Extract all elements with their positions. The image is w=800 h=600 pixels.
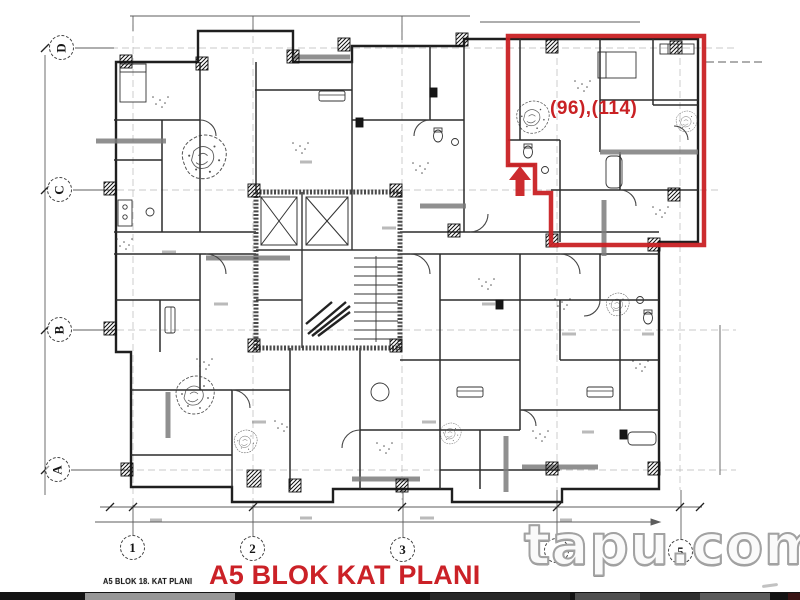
scan-bar-segment	[85, 593, 235, 600]
unit-annotation-label: (96),(114)	[550, 98, 637, 120]
scan-bar-segment	[788, 593, 800, 600]
grid-bubble-col-2: 2	[240, 536, 265, 561]
grid-bubble-row-d: D	[49, 35, 74, 60]
stair-treads	[354, 256, 398, 342]
dimension-lines	[45, 16, 762, 539]
scan-bar-segment	[640, 593, 700, 600]
grid-bubble-row-c: C	[47, 177, 72, 202]
thick-walls	[96, 57, 698, 492]
scribble-clusters	[116, 80, 697, 454]
scan-bar-segment	[575, 593, 640, 600]
stair-slashes	[306, 302, 350, 336]
elevator-icon	[261, 197, 348, 245]
grid-bubble-col-3: 3	[390, 537, 415, 562]
door-arcs	[200, 120, 688, 448]
drawing-title: A5 BLOK KAT PLANI	[209, 560, 480, 591]
drawing-subtitle: A5 BLOK 18. KAT PLANI	[103, 577, 192, 586]
grid-lines	[71, 25, 736, 505]
scan-bar-segment	[430, 593, 570, 600]
grid-bubble-col-1: 1	[120, 535, 145, 560]
red-arrow-up-icon	[509, 166, 531, 196]
bottom-scan-bar	[0, 592, 800, 600]
grid-bubble-row-a: A	[45, 457, 70, 482]
floor-plan-drawing	[0, 0, 800, 600]
floor-plan-scan: (96),(114) D C B A 1 2 3 4 5 A5 BLOK 18.…	[0, 0, 800, 600]
scan-bar-segment	[700, 593, 770, 600]
tapu-watermark: tapu.com	[524, 518, 800, 573]
grid-bubble-row-b: B	[47, 317, 72, 342]
